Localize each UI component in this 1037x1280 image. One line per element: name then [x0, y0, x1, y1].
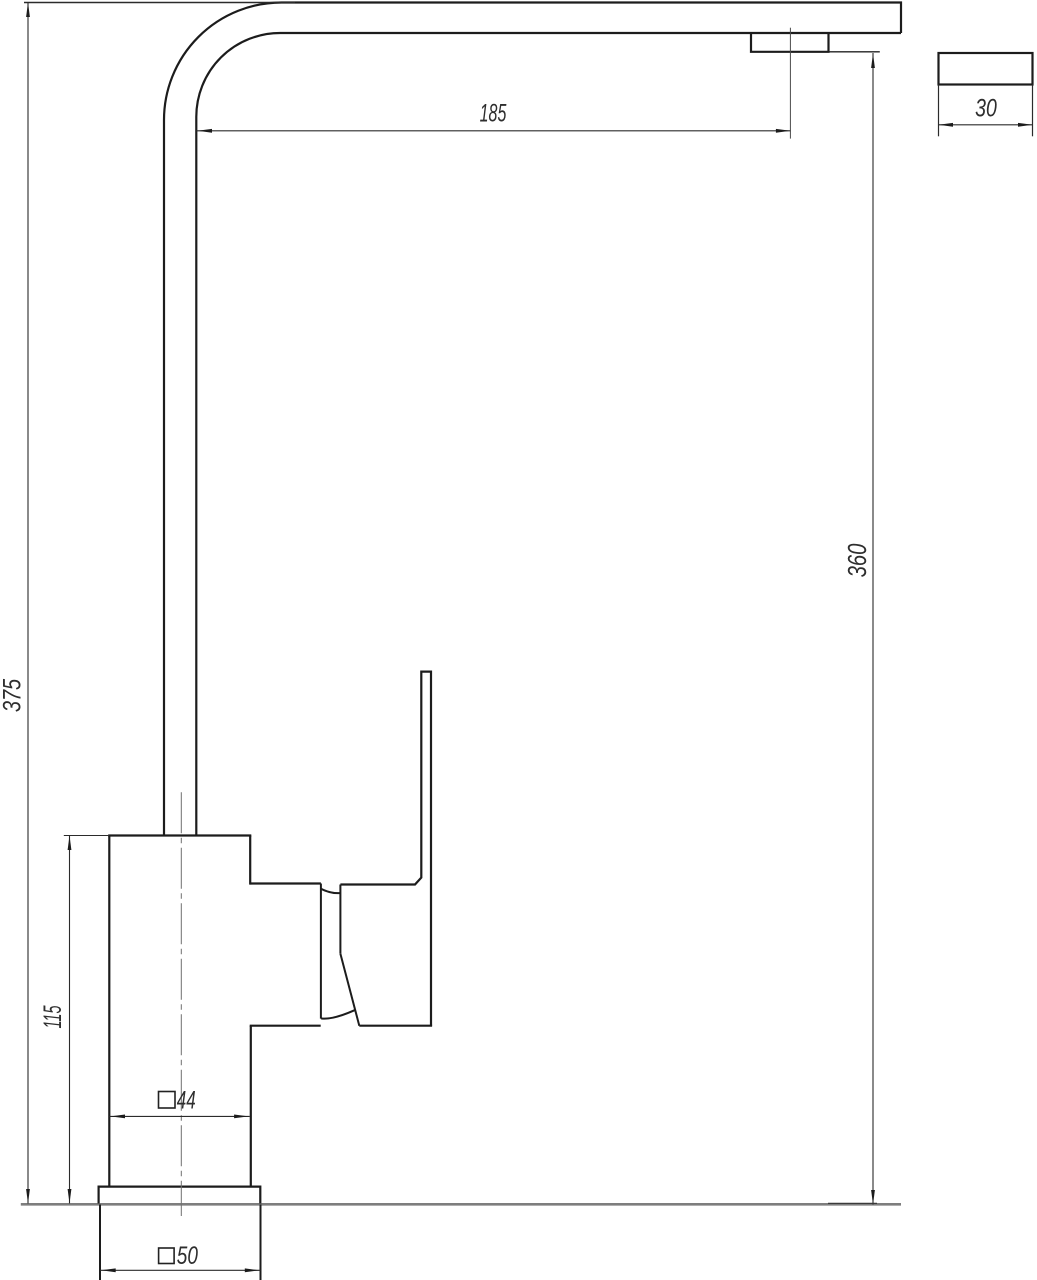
svg-text:44: 44: [177, 1086, 196, 1114]
svg-text:375: 375: [0, 678, 26, 712]
svg-text:30: 30: [975, 94, 997, 122]
svg-text:360: 360: [843, 544, 872, 578]
svg-text:50: 50: [177, 1241, 199, 1269]
svg-text:115: 115: [40, 1005, 67, 1029]
svg-text:185: 185: [480, 100, 507, 127]
